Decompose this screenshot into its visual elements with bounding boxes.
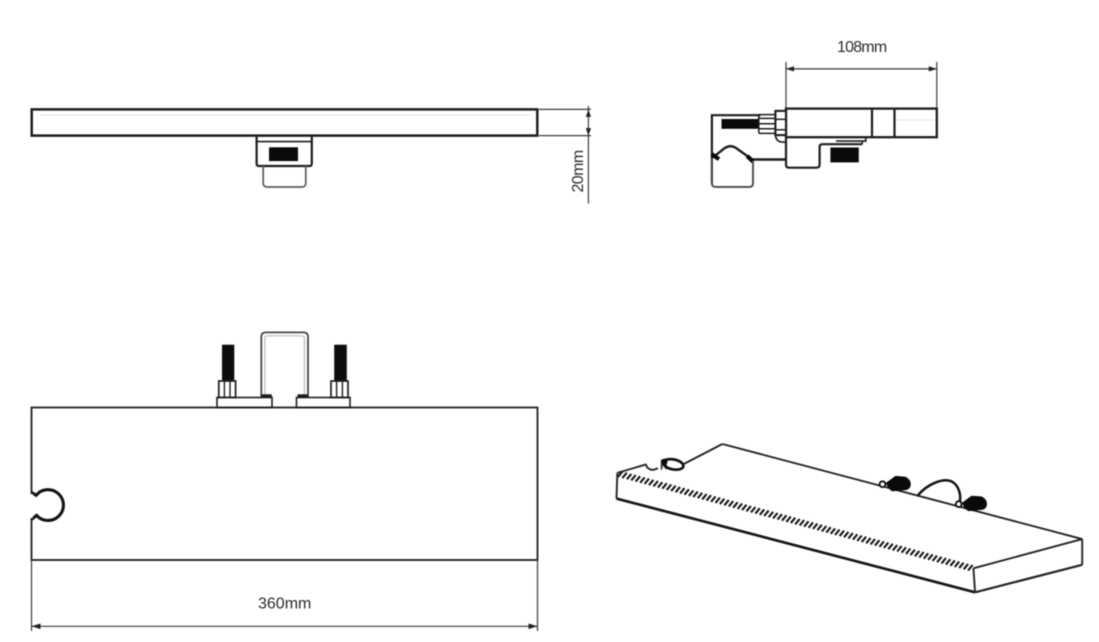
svg-text:20mm: 20mm (570, 150, 587, 192)
svg-text:108mm: 108mm (837, 39, 887, 56)
svg-text:360mm: 360mm (258, 596, 311, 613)
